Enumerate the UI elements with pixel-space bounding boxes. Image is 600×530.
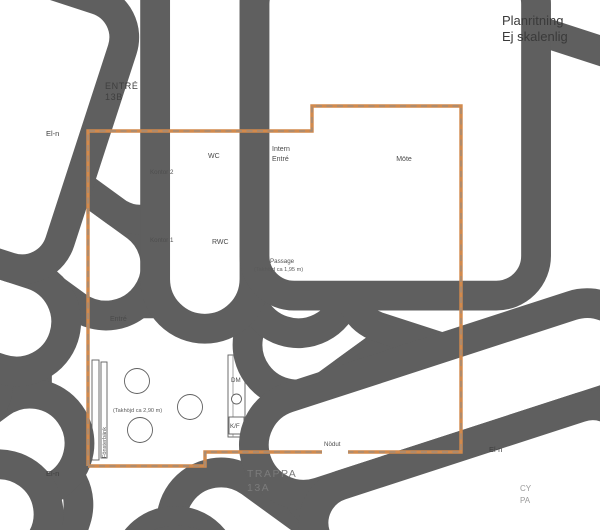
floor-plan-page: Planritning Ej skalenlig ENTRÉ 13B El-n … — [0, 0, 600, 530]
room-label-kontor-1: Kontor 1 — [150, 237, 174, 244]
ceiling-height-note: (Takhöjd ca 1,95 m) — [254, 267, 303, 273]
ceiling-height-note: (Takhöjd ca 2,90 m) — [113, 408, 162, 414]
room-label-wc: WC — [208, 153, 220, 160]
dishwasher-label: DM — [231, 377, 241, 384]
room-label-kontor-2: Kontor 2 — [150, 169, 174, 176]
room-label-entre-13b: ENTRÉ — [105, 81, 139, 91]
emergency-exit-label: Nödut — [324, 441, 341, 448]
window-bench-label: Fönsterbänk — [102, 427, 108, 458]
stair-number-13a: 13A — [247, 482, 270, 494]
room-label-rwc: RWC — [212, 239, 229, 246]
room-label-intern: Intern — [272, 146, 290, 153]
room-number-13b: 13B — [105, 92, 123, 102]
cut-off-text: PA — [520, 496, 531, 505]
elevation-marker: El-n — [46, 129, 59, 138]
drawing-subtitle: Ej skalenlig — [502, 29, 568, 44]
cut-off-text: CY — [520, 484, 532, 493]
drawing-title: Planritning — [502, 13, 563, 28]
room-label-passage: Passage — [270, 258, 295, 265]
fridge-freezer-label: K/F — [230, 423, 240, 430]
stair-label-trappa: TRAPPA — [247, 468, 297, 480]
kitchen-sink — [232, 394, 242, 404]
elevation-marker: El-n — [489, 445, 502, 454]
room-label-entre: Entré — [110, 316, 127, 323]
room-label-intern-entre: Entré — [272, 156, 289, 163]
elevation-marker: El-n — [46, 469, 59, 478]
room-label-mote: Möte — [396, 156, 412, 163]
floor-plan-drawing: Planritning Ej skalenlig ENTRÉ 13B El-n … — [0, 0, 600, 530]
